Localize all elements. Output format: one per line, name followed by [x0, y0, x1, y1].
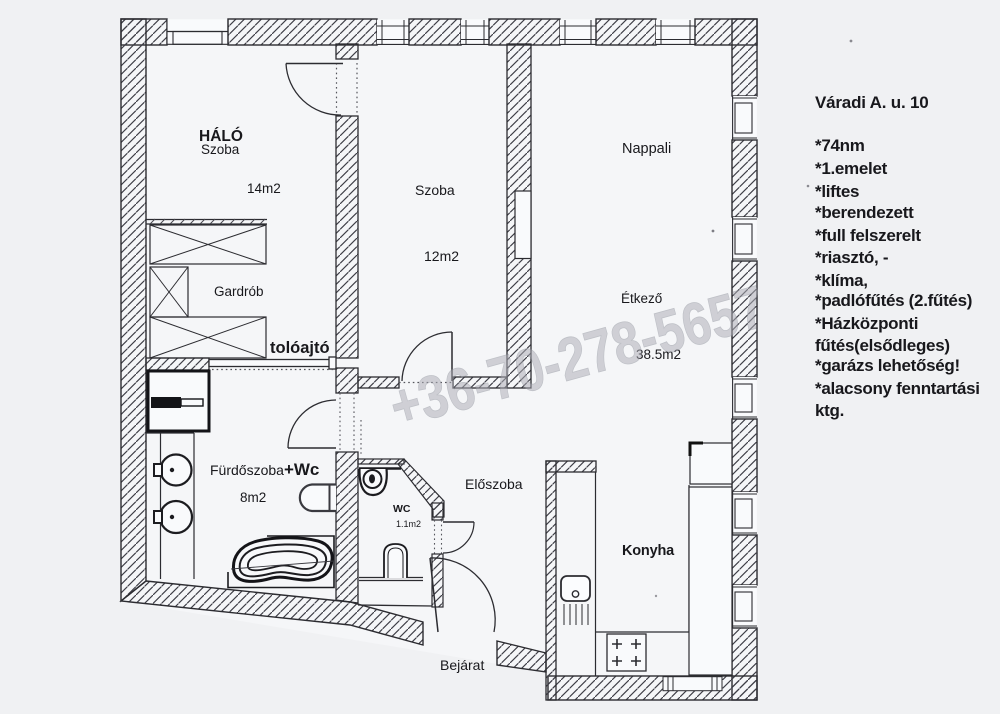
svg-text:fűtés(elsődleges): fűtés(elsődleges): [815, 336, 950, 355]
svg-text:8m2: 8m2: [240, 490, 266, 505]
svg-text:Konyha: Konyha: [622, 543, 675, 559]
svg-text:tolóajtó: tolóajtó: [270, 339, 330, 357]
svg-text:Váradi A. u. 10: Váradi A. u. 10: [815, 93, 929, 112]
svg-text:12m2: 12m2: [424, 248, 459, 264]
svg-text:WC: WC: [393, 503, 411, 515]
svg-text:Előszoba: Előszoba: [465, 476, 523, 492]
svg-text:Nappali: Nappali: [622, 141, 671, 157]
svg-text:1.1m2: 1.1m2: [396, 519, 421, 529]
svg-text:Szoba: Szoba: [415, 182, 455, 198]
svg-text:*alacsony fenntartási: *alacsony fenntartási: [815, 379, 980, 398]
svg-text:Gardrób: Gardrób: [214, 284, 264, 299]
svg-text:Bejárat: Bejárat: [440, 657, 484, 673]
svg-text:*klíma,: *klíma,: [815, 271, 868, 290]
svg-text:*full felszerelt: *full felszerelt: [815, 226, 921, 245]
svg-text:*padlófűtés (2.fűtés): *padlófűtés (2.fűtés): [815, 291, 972, 310]
svg-text:*garázs lehetőség!: *garázs lehetőség!: [815, 356, 960, 375]
svg-text:*berendezett: *berendezett: [815, 203, 914, 222]
svg-text:Szoba: Szoba: [201, 142, 240, 157]
svg-text:14m2: 14m2: [247, 181, 281, 196]
svg-text:*Házközponti: *Házközponti: [815, 314, 918, 333]
svg-text:*riasztó, -: *riasztó, -: [815, 248, 888, 267]
svg-text:*liftes: *liftes: [815, 182, 859, 201]
svg-text:ktg.: ktg.: [815, 401, 844, 420]
svg-text:*1.emelet: *1.emelet: [815, 159, 888, 178]
svg-text:Fürdőszoba+Wc: Fürdőszoba+Wc: [210, 460, 319, 479]
svg-text:*74nm: *74nm: [815, 136, 865, 155]
